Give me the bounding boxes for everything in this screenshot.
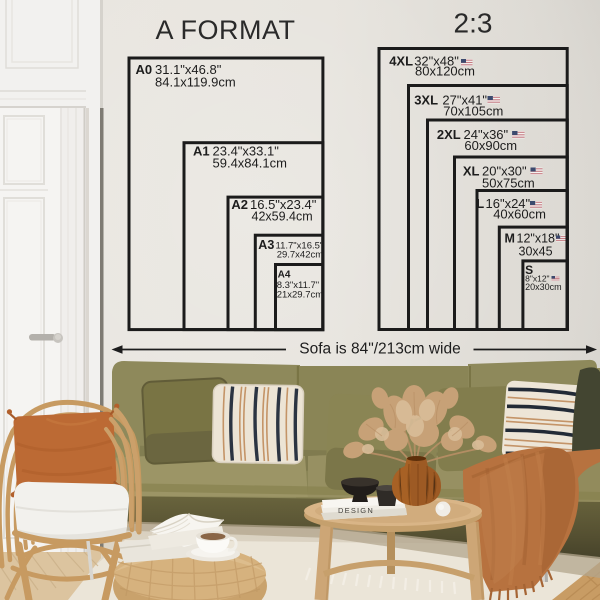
svg-text:M: M [505, 232, 515, 246]
svg-text:2XL: 2XL [437, 127, 461, 142]
svg-text:A FORMAT: A FORMAT [155, 15, 295, 45]
svg-text:42x59.4cm: 42x59.4cm [252, 210, 313, 224]
svg-text:A3: A3 [258, 238, 274, 252]
svg-text:2:3: 2:3 [454, 8, 493, 39]
svg-text:21x29.7cm: 21x29.7cm [277, 290, 324, 301]
svg-text:70x105cm: 70x105cm [443, 104, 503, 119]
svg-text:A2: A2 [231, 197, 248, 212]
svg-text:A0: A0 [136, 62, 153, 77]
svg-text:20x30cm: 20x30cm [525, 282, 562, 292]
svg-text:12"x18": 12"x18" [517, 232, 560, 246]
svg-text:29.7x42cm: 29.7x42cm [277, 250, 324, 261]
svg-text:DESIGN: DESIGN [338, 506, 374, 515]
svg-text:59.4x84.1cm: 59.4x84.1cm [213, 156, 287, 171]
svg-text:84.1x119.9cm: 84.1x119.9cm [155, 75, 236, 90]
svg-text:A4: A4 [278, 270, 291, 281]
svg-text:40x60cm: 40x60cm [493, 207, 546, 222]
svg-text:3XL: 3XL [414, 92, 438, 107]
svg-text:4XL: 4XL [389, 54, 413, 69]
svg-text:30x45: 30x45 [519, 245, 553, 259]
svg-text:A1: A1 [193, 144, 210, 159]
svg-text:L: L [476, 196, 484, 211]
svg-text:60x90cm: 60x90cm [464, 138, 517, 153]
svg-text:Sofa is 84"/213cm wide: Sofa is 84"/213cm wide [299, 341, 460, 358]
svg-text:XL: XL [463, 164, 480, 179]
svg-text:50x75cm: 50x75cm [482, 176, 535, 191]
